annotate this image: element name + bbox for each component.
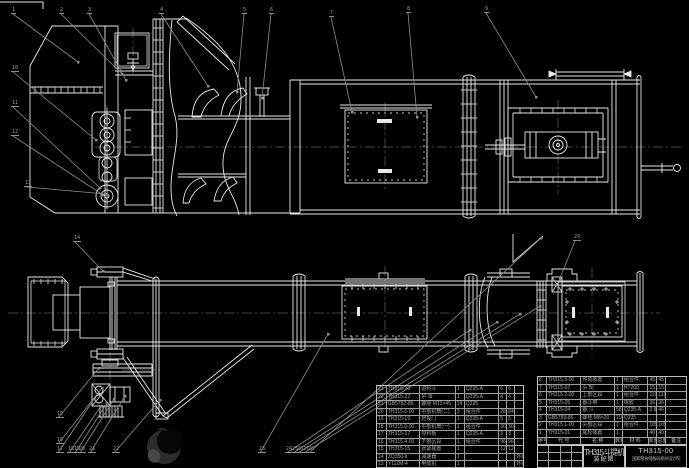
leader-line [58, 388, 102, 444]
bom-cell: 1 [615, 422, 623, 429]
leader-dot [327, 333, 330, 336]
bom-cell: 110 [648, 392, 657, 399]
bom-cell: TH315-07 [547, 385, 582, 392]
bom-row: 21GB5782-86螺栓 M12×4524Q235 [377, 401, 523, 409]
bom-cell [515, 394, 523, 401]
bom-cell: 14 [377, 454, 387, 461]
bom-cell: 组合件 [465, 439, 500, 446]
bom-cell: 橡胶 [623, 400, 649, 407]
bom-cell: Q235 [465, 401, 500, 408]
bom-cell: 8 [538, 377, 547, 384]
leader-dot [95, 139, 98, 142]
leader-dot [539, 305, 542, 308]
bom-cell: 头部区段 [581, 422, 615, 429]
leader-line [90, 396, 125, 453]
leader-line [260, 334, 328, 453]
bom-cell: 畚 斗 [581, 407, 615, 414]
leader-dot [535, 96, 538, 99]
leader-dot [98, 367, 101, 370]
bom-cell [465, 454, 500, 461]
bom-cell: 15 [377, 446, 387, 453]
title-block-signature-grid [537, 445, 583, 468]
bom-cell [515, 401, 523, 408]
bom-cell [623, 430, 649, 437]
balloon-callout: 4 [159, 8, 164, 14]
bom-cell: 0.8 [648, 407, 657, 414]
bom-row: 5TH315-05畚斗带1橡胶3636 [538, 400, 686, 408]
leader-dot [113, 398, 116, 401]
bom-cell: 84 [507, 409, 515, 416]
balloon-callout: 12 [11, 130, 19, 136]
bom-cell: TH315-17 [387, 431, 421, 438]
bom-cell: 1 [456, 424, 465, 431]
bom-header-cell: 材 料 [623, 438, 649, 445]
leader-dot [99, 187, 102, 190]
bom-cell: 4 [538, 407, 547, 414]
leader-dot [261, 97, 264, 100]
drawing-number: TH315-00 [626, 447, 686, 456]
balloon-callout: 16 [56, 438, 64, 444]
bom-row: 13Y112M-4电动机1外购 [377, 461, 523, 468]
leader-line [262, 14, 271, 98]
balloon-callout: 15 [56, 412, 64, 418]
balloon-callout: 1 [11, 8, 16, 14]
bom-cell: TH315-23 [387, 386, 421, 393]
bom-cell: 1 [615, 385, 623, 392]
bom-cell: 5 [499, 416, 507, 423]
leader-line [161, 14, 208, 86]
leader-line [408, 13, 417, 117]
bom-cell [666, 392, 686, 399]
bom-cell: 4 [507, 394, 515, 401]
bom-cell: 电动机 [420, 461, 455, 468]
balloon-callout: 21 [88, 447, 96, 453]
leader-dot [540, 237, 543, 240]
bom-cell: 减速器 [420, 454, 455, 461]
bom-header-cell: 备注 [666, 438, 686, 445]
bom-cell: TH315.3-00 [547, 377, 582, 384]
bom-cell: TH315-15 [387, 446, 421, 453]
bom-header-cell: 总重 [657, 438, 666, 445]
bom-cell: 中部机筒(二) [420, 409, 455, 416]
leader-dot [496, 321, 499, 324]
bom-cell: TH315-04 [547, 407, 582, 414]
bom-cell: 28 [499, 409, 507, 416]
bom-cell: 组合件 [623, 422, 649, 429]
bom-row: 15TH315-15张紧装置11212 [377, 446, 523, 454]
bom-cell: 16 [377, 439, 387, 446]
bom-cell: 检视门 [420, 416, 455, 423]
bom-cell: 1 [456, 461, 465, 468]
bom-cell: 18 [377, 424, 387, 431]
bom-cell: 6 [538, 392, 547, 399]
bom-cell: 13 [377, 461, 387, 468]
bom-cell: Q235-A [465, 386, 500, 393]
bom-cell: 外购 [515, 454, 523, 461]
bom-cell: 1 [456, 386, 465, 393]
bom-cell: 3 [507, 431, 515, 438]
leader-line [26, 187, 106, 194]
bom-cell: 5 [538, 400, 547, 407]
bom-cell [515, 446, 523, 453]
bom-cell: 下部区段 [420, 439, 455, 446]
leader-dot [105, 193, 108, 196]
bom-cell: 中部机筒(一) [420, 424, 455, 431]
bom-cell: 螺栓 M8×20 [581, 415, 615, 422]
bom-cell [499, 461, 507, 468]
bom-cell: 1 [456, 416, 465, 423]
bom-cell: 116 [615, 415, 623, 422]
bom-cell [657, 415, 666, 422]
bom-cell: 24 [456, 401, 465, 408]
leader-line [13, 72, 96, 140]
bom-cell: 1 [456, 454, 465, 461]
bom-cell: TH315-01 [547, 430, 582, 437]
bom-cell: 23 [377, 386, 387, 393]
bom-cell: 组合件 [623, 392, 649, 399]
title-block-number-cell: TH315-00 国家粮食储备局郑州设计院 [625, 445, 687, 468]
bom-cell: 58 [615, 407, 623, 414]
bom-header-cell: 代 号 [547, 438, 582, 445]
bom-cell: 1 [615, 430, 623, 437]
bom-cell: 105 [648, 422, 657, 429]
bom-cell: 45 [657, 377, 666, 384]
bom-cell: Q235-A [623, 407, 649, 414]
bom-row: 6TH315.2-00上部区段1组合件110110 [538, 392, 686, 400]
bom-cell: 105 [657, 422, 666, 429]
leader-line [58, 368, 99, 418]
bom-cell: 2 [538, 422, 547, 429]
bom-cell: TH315.2-00 [547, 392, 582, 399]
bom-cell: 护 罩 [420, 394, 455, 401]
drawing-title: TH315斗提机 [584, 448, 624, 457]
bom-cell: TH315-22 [387, 394, 421, 401]
bom-cell: Q235-A [465, 431, 500, 438]
bom-cell: 17 [377, 431, 387, 438]
bom-cell [515, 416, 523, 423]
bom-row: 22TH315-22护 罩1Q235-A44 [377, 394, 523, 402]
bom-cell: TH315.6-00 [387, 409, 421, 416]
bom-cell [499, 454, 507, 461]
leader-line [58, 399, 94, 453]
bom-cell: 组合件 [465, 424, 500, 431]
balloon-callout: 17 [56, 447, 64, 453]
leader-line [75, 242, 103, 271]
balloon-callout: 20 [78, 447, 86, 453]
bom-cell: 1 [615, 392, 623, 399]
bom-cell [507, 461, 515, 468]
bom-cell [648, 415, 657, 422]
bom-cell: ZQ350-Ⅱ [387, 454, 421, 461]
bom-cell: 1 [456, 446, 465, 453]
leader-dot [93, 398, 96, 401]
bom-cell: HT200 [623, 385, 649, 392]
leader-line [560, 241, 575, 278]
sheet-type: 装配图 [584, 457, 624, 464]
leader-line [331, 17, 352, 112]
bom-cell: 30 [499, 424, 507, 431]
bom-cell [515, 386, 523, 393]
leader-line [237, 14, 244, 92]
bom-cell: 36 [648, 400, 657, 407]
balloon-callout: 2 [59, 8, 64, 14]
bom-cell [666, 400, 686, 407]
bom-table-left: 23TH315-23进料斗1Q235-A6622TH315-22护 罩1Q235… [376, 385, 524, 468]
bom-cell: 19 [377, 416, 387, 423]
bom-cell: 45 [648, 377, 657, 384]
bom-cell: 6 [507, 386, 515, 393]
bom-cell [515, 431, 523, 438]
balloon-callout: 14 [73, 236, 81, 242]
bom-cell: 20 [377, 409, 387, 416]
bom-cell: Y112M-4 [387, 461, 421, 468]
bom-cell: 12 [507, 446, 515, 453]
bom-cell: 导料板 [420, 431, 455, 438]
bom-cell: 组合件 [623, 377, 649, 384]
balloon-callout: 6 [269, 8, 274, 14]
leader-dot [102, 270, 105, 273]
leader-dot [77, 61, 80, 64]
cad-viewport: 23TH315-23进料斗1Q235-A6622TH315-22护 罩1Q235… [0, 0, 689, 468]
bom-row: 2TH315.1-00头部区段1组合件105105 [538, 422, 686, 430]
balloon-callout: 11 [11, 101, 19, 107]
bom-header-cell: 名 称 [581, 438, 615, 445]
bom-cell: 30 [507, 424, 515, 431]
bom-cell [666, 422, 686, 429]
bom-cell: TH315.1-00 [547, 422, 582, 429]
bom-header-cell: 序号 [538, 438, 547, 445]
bom-cell: 36 [657, 400, 666, 407]
leader-dot [101, 387, 104, 390]
balloon-callout: 3 [87, 8, 92, 14]
leader-dot [236, 91, 239, 94]
bom-cell: 畚斗带 [581, 400, 615, 407]
bom-row: 16TH315.4-00下部区段1组合件9696 [377, 439, 523, 447]
bom-cell: 1 [456, 431, 465, 438]
bom-cell [465, 461, 500, 468]
bom-header-cell: 数量 [615, 438, 623, 445]
bom-cell: 3 [538, 415, 547, 422]
bom-cell [666, 407, 686, 414]
publisher-logo [145, 428, 183, 465]
bom-cell: 21 [377, 401, 387, 408]
bom-cell: 螺栓 M12×45 [420, 401, 455, 408]
leader-line [80, 399, 114, 453]
title-block-name-cell: TH315斗提机 装配图 [583, 445, 625, 468]
bom-cell [515, 439, 523, 446]
bom-cell: 4 [499, 394, 507, 401]
bom-cell: 上部区段 [581, 392, 615, 399]
bom-cell: 15 [657, 385, 666, 392]
leader-dot [207, 85, 210, 88]
leader-dot [159, 399, 162, 402]
bom-row: 20TH315.6-00中部机筒(二)3组合件2884 [377, 409, 523, 417]
bom-cell: 22 [377, 394, 387, 401]
balloon-callout: 23 [258, 447, 266, 453]
bom-header-row: 序号代 号名 称数量材 料单重总重备注 [538, 438, 686, 445]
frame-corner [0, 2, 43, 9]
bom-cell: 15 [648, 385, 657, 392]
bom-cell [666, 430, 686, 437]
bom-cell: 40 [648, 430, 657, 437]
bom-cell: GB5783-86 [547, 415, 582, 422]
bom-cell: TH315-05 [547, 400, 582, 407]
bom-table-right: 8TH315.3-00传动装置1组合件45457TH315-07头 轮1HT20… [537, 376, 687, 445]
leader-dot [100, 405, 103, 408]
centerlines [8, 28, 682, 424]
bom-cell [465, 446, 500, 453]
bom-cell [666, 377, 686, 384]
balloon-callout: 13 [24, 181, 32, 187]
bom-cell [666, 385, 686, 392]
balloon-callout: 9 [484, 7, 489, 13]
leader-dot [469, 329, 472, 332]
leader-dot [124, 395, 127, 398]
bom-row: 17TH315-17导料板1Q235-A33 [377, 431, 523, 439]
bom-cell: 头 轮 [581, 385, 615, 392]
bom-row: 23TH315-23进料斗1Q235-A66 [377, 386, 523, 394]
bom-cell: 40 [657, 430, 666, 437]
bom-cell: 传动装置 [581, 377, 615, 384]
bom-cell: 1 [456, 394, 465, 401]
leader-line [13, 107, 100, 188]
bom-cell [515, 424, 523, 431]
bom-cell: 1 [615, 377, 623, 384]
bom-header-cell: 单重 [649, 438, 658, 445]
bom-cell: 7 [538, 385, 547, 392]
leader-dot [102, 194, 105, 197]
leader-dot [519, 313, 522, 316]
leader-line [61, 14, 122, 74]
top-view [30, 16, 681, 219]
bom-cell: 进料斗 [420, 386, 455, 393]
balloon-callout: 5 [242, 8, 247, 14]
bom-row: 1TH315-01尾轮装置14040 [538, 430, 686, 438]
bom-row: 18TH315.5-00中部机筒(一)1组合件3030 [377, 424, 523, 432]
bom-cell: TH315.5-00 [387, 424, 421, 431]
bom-cell: 尾轮装置 [581, 430, 615, 437]
bom-cell: TH315.4-00 [387, 439, 421, 446]
bom-row: 8TH315.3-00传动装置1组合件4545 [538, 377, 686, 385]
bom-cell: 6 [499, 386, 507, 393]
balloon-callout: 22 [112, 447, 120, 453]
bom-cell: 1 [615, 400, 623, 407]
bom-cell: 5 [507, 416, 515, 423]
bom-row: 3GB5783-86螺栓 M8×20116Q235 [538, 415, 686, 423]
leader-dot [351, 111, 354, 114]
bom-cell: 组合件 [465, 409, 500, 416]
bom-cell: 外购 [515, 461, 523, 468]
balloon-callout: 8 [406, 7, 411, 13]
bom-cell [507, 401, 515, 408]
balloon-callout: 10 [11, 66, 19, 72]
bom-cell: 张紧装置 [420, 446, 455, 453]
bom-cell [499, 401, 507, 408]
bom-cell: TH315-19 [387, 416, 421, 423]
bom-cell: 3 [499, 431, 507, 438]
bom-row: 4TH315-04畚 斗58Q235-A0.846 [538, 407, 686, 415]
leader-dot [106, 402, 109, 405]
bom-cell: 46 [657, 407, 666, 414]
bom-cell: 1 [538, 430, 547, 437]
balloon-callout: 29 [573, 235, 581, 241]
balloon-callout: 28 [307, 447, 315, 453]
bom-cell: 96 [507, 439, 515, 446]
bom-cell: 1 [456, 439, 465, 446]
bom-cell [507, 454, 515, 461]
bom-cell: 3 [456, 409, 465, 416]
leader-dot [416, 116, 419, 119]
bom-cell [515, 409, 523, 416]
bom-cell: Q235-A [465, 416, 500, 423]
leader-dot [559, 277, 562, 280]
bom-cell: Q235 [623, 415, 649, 422]
design-company: 国家粮食储备局郑州设计院 [626, 456, 686, 462]
balloon-callout: 7 [329, 11, 334, 17]
bom-row: 7TH315-07头 轮1HT2001515 [538, 385, 686, 393]
bom-cell [666, 415, 686, 422]
bom-cell: 96 [499, 439, 507, 446]
bom-cell: 110 [657, 392, 666, 399]
bom-cell: Q235-A [465, 394, 500, 401]
bom-cell: 12 [499, 446, 507, 453]
bom-cell: GB5782-86 [387, 401, 421, 408]
leader-dot [125, 79, 128, 82]
bom-row: 14ZQ350-Ⅱ减速器1外购 [377, 454, 523, 462]
bom-row: 19TH315-19检视门1Q235-A55 [377, 416, 523, 424]
